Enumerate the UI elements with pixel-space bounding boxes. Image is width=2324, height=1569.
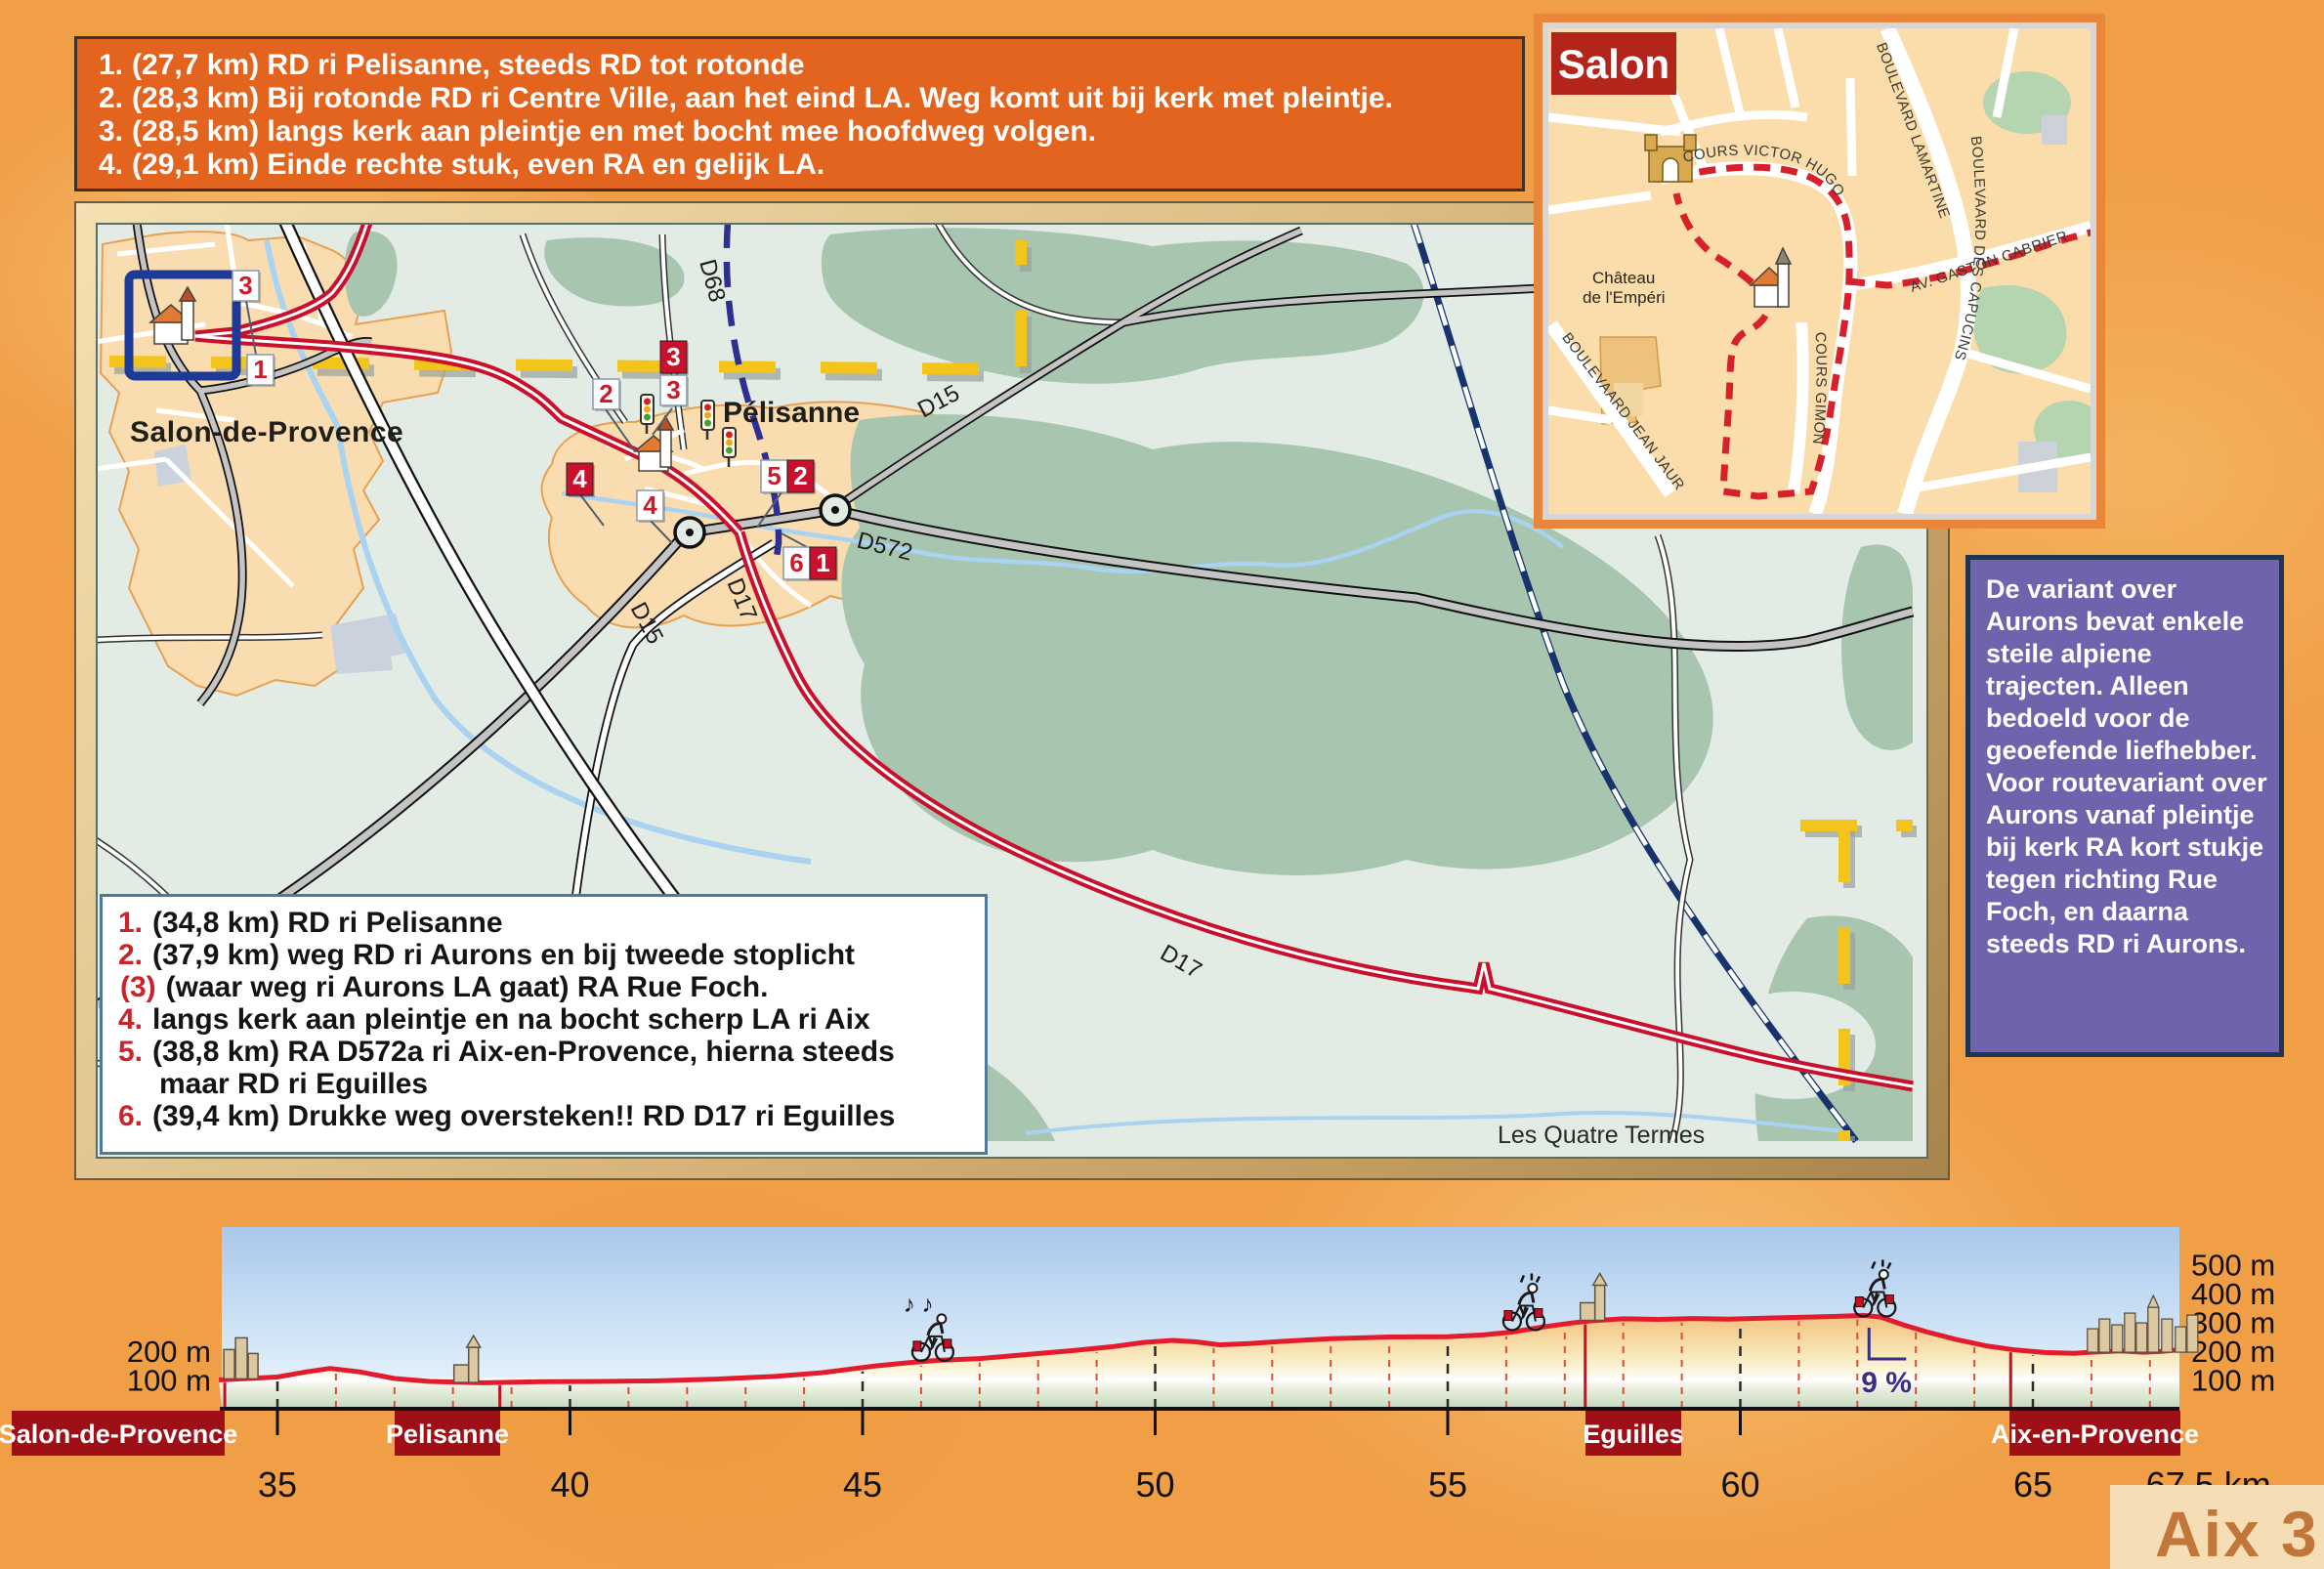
- town-label-pelisanne: Pélisanne: [723, 397, 860, 429]
- instruction-text: langs kerk aan pleintje en na bocht sche…: [152, 1003, 870, 1036]
- music-notes: ♪ ♪: [904, 1292, 934, 1318]
- marker-pel-4-white: 4: [637, 490, 665, 523]
- y-tick-right: 100 m: [2191, 1363, 2275, 1397]
- instruction-number: 3.: [99, 115, 123, 148]
- marker-pel-2: 2: [593, 379, 621, 411]
- svg-text:3: 3: [238, 271, 252, 300]
- route-instructions-detail: 1.(34,8 km) RD ri Pelisanne 2.(37,9 km) …: [100, 894, 988, 1155]
- inset-map-canvas: COURS VICTOR HUGO BOULEVARD LAMARTINE BO…: [1548, 28, 2091, 514]
- instruction-number: 6.: [118, 1100, 143, 1132]
- instruction-line: 2.(37,9 km) weg RD ri Aurons en bij twee…: [118, 939, 969, 971]
- instruction-text: (39,4 km) Drukke weg oversteken!! RD D17…: [152, 1100, 895, 1132]
- x-tick-label: 45: [843, 1464, 882, 1505]
- svg-text:6: 6: [789, 548, 803, 577]
- marker-pel-3-white: 3: [660, 375, 689, 407]
- inset-title: Salon: [1551, 32, 1676, 95]
- instruction-line: 1.(27,7 km) RD ri Pelisanne, steeds RD t…: [99, 49, 1500, 82]
- instruction-number: 4.: [118, 1003, 143, 1036]
- marker-pel-2-red: 2: [787, 460, 816, 494]
- town-label-salon: Salon-de-Provence: [130, 416, 403, 448]
- instruction-number: 4.: [99, 148, 123, 181]
- instruction-line: 1.(34,8 km) RD ri Pelisanne: [118, 907, 969, 939]
- x-tick-label: 40: [550, 1464, 589, 1505]
- svg-text:3: 3: [666, 375, 680, 404]
- page-corner-label-text: Aix 3: [2110, 1485, 2324, 1569]
- variant-note-text: De variant over Aurons bevat enkele stei…: [1986, 573, 2267, 960]
- marker-pel-5: 5: [761, 460, 789, 494]
- x-tick-label: 60: [1720, 1464, 1759, 1505]
- instruction-line: 5.(38,8 km) RA D572a ri Aix-en-Provence,…: [118, 1036, 969, 1100]
- chateau-label: Château de l'Empéri: [1583, 269, 1666, 307]
- instruction-text: (28,3 km) Bij rotonde RD ri Centre Ville…: [132, 82, 1393, 114]
- elevation-profile-canvas: 3540455055606567,5 kmSalon-de-ProvencePe…: [0, 1216, 2324, 1514]
- town-box-label: Salon-de-Provence: [0, 1420, 237, 1449]
- town-box-label: Eguilles: [1583, 1420, 1684, 1449]
- inset-map-salon: COURS VICTOR HUGO BOULEVARD LAMARTINE BO…: [1534, 14, 2105, 529]
- variant-note: De variant over Aurons bevat enkele stei…: [1965, 555, 2284, 1057]
- marker-salon-3: 3: [232, 271, 261, 303]
- place-label-quatre-termes: Les Quatre Termes: [1498, 1122, 1705, 1149]
- instruction-text: (34,8 km) RD ri Pelisanne: [152, 907, 502, 939]
- page-corner-label: Aix 3: [2110, 1485, 2324, 1569]
- svg-text:5: 5: [767, 461, 781, 490]
- marker-pel-6: 6: [783, 547, 812, 581]
- marker-pel-1-red: 1: [810, 547, 838, 581]
- instruction-line: 2.(28,3 km) Bij rotonde RD ri Centre Vil…: [99, 82, 1500, 115]
- x-tick-label: 55: [1428, 1464, 1467, 1505]
- svg-text:2: 2: [793, 461, 807, 490]
- marker-pel-3-red: 3: [660, 341, 689, 375]
- instruction-line: 4.langs kerk aan pleintje en na bocht sc…: [118, 1003, 969, 1036]
- instruction-number: 1.: [118, 907, 143, 939]
- svg-text:1: 1: [816, 548, 829, 577]
- instruction-line: 4.(29,1 km) Einde rechte stuk, even RA e…: [99, 148, 1500, 182]
- instruction-text: (37,9 km) weg RD ri Aurons en bij tweede…: [152, 939, 855, 971]
- instruction-number: 1.: [99, 49, 123, 81]
- elevation-profile: 3540455055606567,5 kmSalon-de-ProvencePe…: [0, 1216, 2324, 1514]
- inset-map-frame: COURS VICTOR HUGO BOULEVARD LAMARTINE BO…: [1542, 22, 2096, 520]
- x-tick-label: 50: [1135, 1464, 1174, 1505]
- instruction-line: 6.(39,4 km) Drukke weg oversteken!! RD D…: [118, 1100, 969, 1132]
- town-box-label: Pelisanne: [386, 1420, 509, 1449]
- instruction-line: (3)(waar weg ri Aurons LA gaat) RA Rue F…: [120, 971, 969, 1003]
- svg-text:de l'Empéri: de l'Empéri: [1583, 288, 1666, 307]
- y-tick-left: 100 m: [127, 1363, 211, 1397]
- instruction-line: 3.(28,5 km) langs kerk aan pleintje en m…: [99, 115, 1500, 148]
- svg-text:2: 2: [599, 379, 613, 408]
- marker-pel-4-red: 4: [567, 463, 595, 497]
- instruction-text: (38,8 km) RA D572a ri Aix-en-Provence, h…: [152, 1036, 895, 1100]
- instruction-number: (3): [120, 971, 156, 1003]
- gradient-label: 9 %: [1861, 1367, 1912, 1399]
- instruction-number: 2.: [118, 939, 143, 971]
- route-instructions-top: 1.(27,7 km) RD ri Pelisanne, steeds RD t…: [74, 36, 1525, 191]
- svg-text:3: 3: [666, 342, 680, 371]
- svg-text:4: 4: [572, 464, 587, 493]
- instruction-text: (29,1 km) Einde rechte stuk, even RA en …: [132, 148, 824, 181]
- instruction-text: (27,7 km) RD ri Pelisanne, steeds RD tot…: [132, 49, 805, 81]
- instruction-number: 2.: [99, 82, 123, 114]
- svg-text:1: 1: [253, 355, 267, 384]
- x-tick-label: 65: [2013, 1464, 2052, 1505]
- svg-text:4: 4: [643, 490, 657, 520]
- instruction-text: (28,5 km) langs kerk aan pleintje en met…: [132, 115, 1096, 148]
- town-box-label: Aix-en-Provence: [1991, 1420, 2199, 1449]
- instruction-text: (waar weg ri Aurons LA gaat) RA Rue Foch…: [166, 971, 769, 1003]
- instruction-number: 5.: [118, 1036, 143, 1068]
- svg-text:Château: Château: [1592, 269, 1655, 287]
- x-tick-label: 35: [258, 1464, 297, 1505]
- svg-text:Salon: Salon: [1558, 41, 1669, 87]
- marker-salon-1: 1: [247, 355, 275, 387]
